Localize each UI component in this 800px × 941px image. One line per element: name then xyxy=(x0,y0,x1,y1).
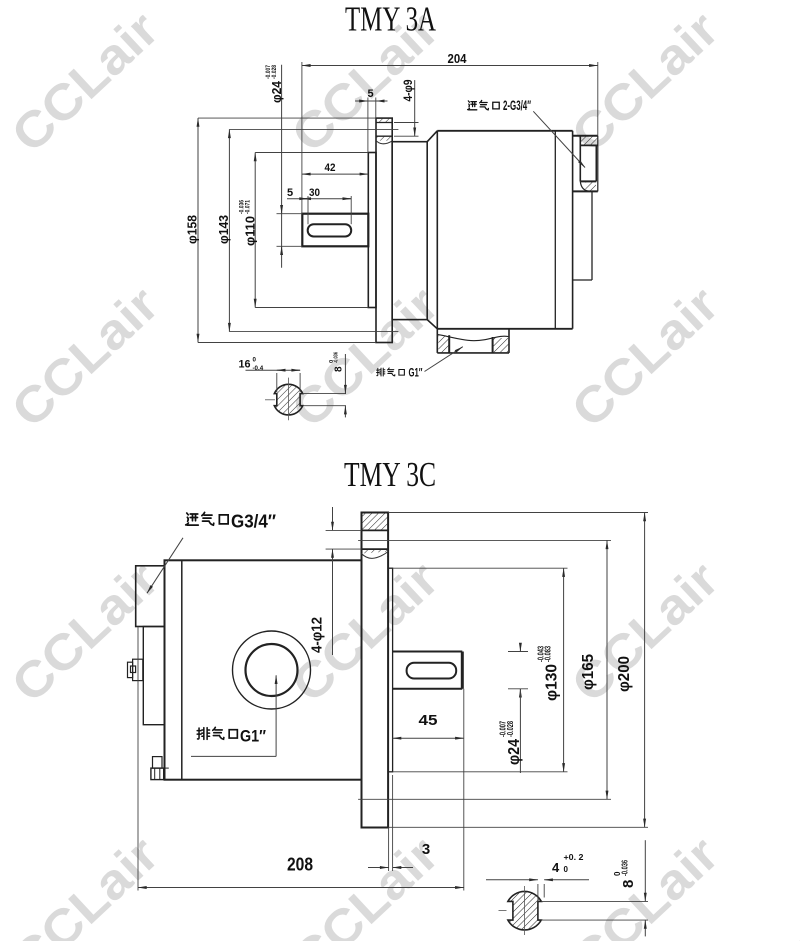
svg-text:TMY 3C: TMY 3C xyxy=(344,455,436,494)
svg-text:4: 4 xyxy=(552,860,560,875)
svg-text:208: 208 xyxy=(287,855,313,875)
svg-text:φ200: φ200 xyxy=(616,656,633,692)
svg-text:30: 30 xyxy=(309,187,320,199)
svg-text:φ143: φ143 xyxy=(216,215,231,244)
svg-text:42: 42 xyxy=(325,162,336,174)
svg-text:8: 8 xyxy=(334,366,345,372)
svg-text:-0.083: -0.083 xyxy=(544,646,553,662)
svg-text:-0.028: -0.028 xyxy=(506,721,515,737)
svg-text:G1″: G1″ xyxy=(409,367,423,379)
svg-text:-0.4: -0.4 xyxy=(253,365,264,372)
svg-text:G1″: G1″ xyxy=(240,727,266,746)
svg-text:45: 45 xyxy=(419,712,438,729)
svg-text:φ158: φ158 xyxy=(185,215,200,244)
svg-text:-0.036: -0.036 xyxy=(620,860,629,876)
svg-text:16: 16 xyxy=(239,359,251,371)
svg-text:4-φ12: 4-φ12 xyxy=(309,617,326,653)
svg-text:φ165: φ165 xyxy=(580,654,597,690)
svg-text:5: 5 xyxy=(367,88,373,100)
svg-text:+0. 2: +0. 2 xyxy=(564,853,585,862)
svg-text:3: 3 xyxy=(422,841,430,858)
svg-text:φ130: φ130 xyxy=(544,664,561,701)
svg-text:4-φ9: 4-φ9 xyxy=(401,79,415,101)
svg-text:-0.036: -0.036 xyxy=(334,351,340,363)
svg-text:TMY 3A: TMY 3A xyxy=(345,0,437,39)
svg-text:0: 0 xyxy=(564,865,569,874)
svg-text:-0.028: -0.028 xyxy=(271,65,278,79)
svg-text:G3/4″: G3/4″ xyxy=(231,512,276,532)
svg-text:2-G3/4″: 2-G3/4″ xyxy=(503,98,531,113)
svg-text:204: 204 xyxy=(448,51,468,66)
svg-text:φ24: φ24 xyxy=(269,80,284,103)
svg-text:0: 0 xyxy=(253,357,257,364)
svg-text:8: 8 xyxy=(620,880,637,888)
svg-text:φ110: φ110 xyxy=(243,216,258,246)
svg-text:φ24: φ24 xyxy=(506,739,523,765)
svg-text:5: 5 xyxy=(287,187,293,199)
svg-text:-0.071: -0.071 xyxy=(245,200,252,214)
